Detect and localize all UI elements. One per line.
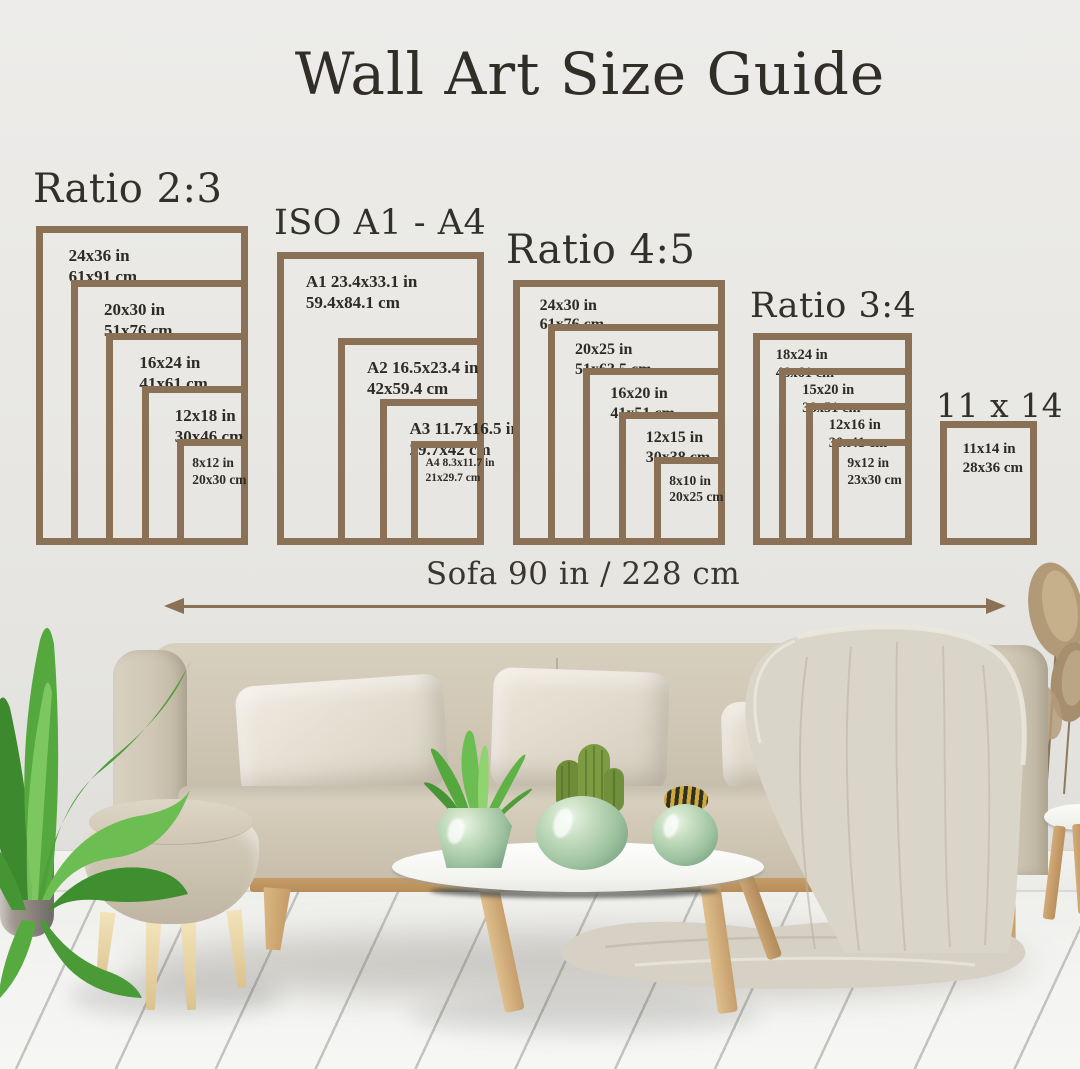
wall-art-size-guide-poster: Wall Art Size Guide Ratio 2:324x36 in61x…: [0, 0, 1080, 1069]
frame-size-label: 16x20 in41x51 cm: [610, 384, 674, 424]
size-in-inches: 8x10 in: [669, 473, 723, 490]
page-title: Wall Art Size Guide: [140, 40, 1040, 108]
size-in-inches: 8x12 in: [192, 455, 246, 472]
frame-size-label: 8x10 in20x25 cm: [669, 473, 723, 506]
size-in-inches: 11x14 in: [963, 440, 1023, 459]
frame-size-label: 9x12 in23x30 cm: [847, 455, 901, 488]
size-frame-18x24-in: 18x24 in46x61 cm: [753, 333, 912, 545]
group-heading-ratio-4-5: Ratio 4:5: [506, 227, 695, 273]
frame-size-label: 12x16 in30x41 cm: [829, 417, 887, 453]
size-in-inches: 20x30 in: [104, 299, 172, 320]
floor-plant: [0, 600, 202, 1030]
frame-size-label: 11x14 in28x36 cm: [963, 440, 1023, 477]
size-frame-15x20-in: 15x20 in38x51 cm: [779, 368, 912, 545]
size-in-inches: 12x16 in: [829, 417, 887, 435]
size-in-cm: 20x30 cm: [192, 472, 246, 489]
frame-size-label: A4 8.3x11.7 in21x29.7 cm: [426, 456, 495, 485]
size-in-cm: 30x38 cm: [646, 448, 710, 468]
cactus-vase: [536, 796, 628, 870]
size-in-cm: 46x61 cm: [776, 365, 834, 383]
size-in-cm: 51x76 cm: [104, 320, 172, 341]
size-frame-a2-16.5x23.4-in: A2 16.5x23.4 in42x59.4 cm: [338, 338, 484, 545]
size-in-cm: 59.4x84.1 cm: [306, 292, 417, 313]
group-heading-ratio-2-3: Ratio 2:3: [33, 166, 222, 212]
frame-size-label: 20x25 in51x63.5 cm: [575, 340, 651, 380]
pillow: [234, 673, 449, 799]
coffee-table-shadow: [410, 995, 760, 1035]
size-in-inches: A4 8.3x11.7 in: [426, 456, 495, 470]
size-in-inches: 12x15 in: [646, 428, 710, 448]
size-frame-16x20-in: 16x20 in41x51 cm: [583, 368, 725, 545]
size-in-cm: 42x59.4 cm: [367, 378, 478, 399]
size-in-inches: 18x24 in: [776, 347, 834, 365]
frame-size-label: A3 11.7x16.5 in29.7x42 cm: [409, 418, 520, 460]
size-in-cm: 41x61 cm: [139, 373, 207, 394]
size-in-cm: 20x25 cm: [669, 489, 723, 506]
frame-size-label: 20x30 in51x76 cm: [104, 299, 172, 341]
size-in-cm: 61x76 cm: [540, 315, 604, 335]
size-in-cm: 38x51 cm: [802, 400, 860, 418]
size-frame-16x24-in: 16x24 in41x61 cm: [106, 333, 248, 545]
frame-size-label: 16x24 in41x61 cm: [139, 352, 207, 394]
size-frame-12x15-in: 12x15 in30x38 cm: [619, 412, 725, 545]
sofa-measure-arrow-line: [182, 605, 988, 608]
size-in-cm: 23x30 cm: [847, 472, 901, 489]
sofa-measure-label: Sofa 90 in / 228 cm: [233, 556, 933, 592]
size-in-inches: 12x18 in: [175, 405, 243, 426]
frame-size-label: 24x36 in61x91 cm: [69, 245, 137, 287]
frame-size-label: A2 16.5x23.4 in42x59.4 cm: [367, 357, 478, 399]
frame-size-label: 12x18 in30x46 cm: [175, 405, 243, 447]
frame-size-label: 12x15 in30x38 cm: [646, 428, 710, 468]
size-frame-11x14-in: 11x14 in28x36 cm: [940, 421, 1037, 545]
size-frame-20x25-in: 20x25 in51x63.5 cm: [548, 324, 725, 545]
size-in-inches: A1 23.4x33.1 in: [306, 271, 417, 292]
size-in-cm: 29.7x42 cm: [409, 439, 520, 460]
size-frame-9x12-in: 9x12 in23x30 cm: [832, 439, 912, 545]
frame-size-label: 18x24 in46x61 cm: [776, 347, 834, 383]
size-in-inches: 24x30 in: [540, 296, 604, 316]
group-heading-size-11x14: 11 x 14: [936, 386, 1063, 425]
size-in-inches: A3 11.7x16.5 in: [409, 418, 520, 439]
size-in-cm: 61x91 cm: [69, 266, 137, 287]
frame-size-label: 15x20 in38x51 cm: [802, 382, 860, 418]
size-in-inches: 16x20 in: [610, 384, 674, 404]
size-frame-a1-23.4x33.1-in: A1 23.4x33.1 in59.4x84.1 cm: [277, 252, 484, 545]
size-in-inches: 16x24 in: [139, 352, 207, 373]
size-in-inches: A2 16.5x23.4 in: [367, 357, 478, 378]
size-in-inches: 15x20 in: [802, 382, 860, 400]
size-frame-8x12-in: 8x12 in20x30 cm: [177, 439, 248, 545]
size-in-cm: 21x29.7 cm: [426, 471, 495, 485]
size-in-cm: 28x36 cm: [963, 459, 1023, 478]
size-frame-12x16-in: 12x16 in30x41 cm: [806, 403, 912, 545]
size-frame-8x10-in: 8x10 in20x25 cm: [654, 457, 725, 546]
size-frame-a4-8.3x11.7-in: A4 8.3x11.7 in21x29.7 cm: [411, 441, 484, 545]
size-in-cm: 51x63.5 cm: [575, 360, 651, 380]
size-in-inches: 24x36 in: [69, 245, 137, 266]
arrow-right-icon: [986, 598, 1006, 614]
size-frame-a3-11.7x16.5-in: A3 11.7x16.5 in29.7x42 cm: [380, 399, 484, 545]
size-in-inches: 20x25 in: [575, 340, 651, 360]
frame-size-label: 24x30 in61x76 cm: [540, 296, 604, 336]
arrow-left-icon: [164, 598, 184, 614]
group-heading-ratio-3-4: Ratio 3:4: [750, 286, 916, 326]
size-in-cm: 30x41 cm: [829, 435, 887, 453]
size-frame-24x30-in: 24x30 in61x76 cm: [513, 280, 725, 546]
size-in-inches: 9x12 in: [847, 455, 901, 472]
size-in-cm: 41x51 cm: [610, 404, 674, 424]
size-frame-20x30-in: 20x30 in51x76 cm: [71, 280, 248, 546]
frame-size-label: A1 23.4x33.1 in59.4x84.1 cm: [306, 271, 417, 313]
size-frame-12x18-in: 12x18 in30x46 cm: [142, 386, 248, 545]
size-frame-24x36-in: 24x36 in61x91 cm: [36, 226, 248, 545]
frame-size-label: 8x12 in20x30 cm: [192, 455, 246, 488]
size-in-cm: 30x46 cm: [175, 426, 243, 447]
succulent-vase: [652, 804, 718, 866]
group-heading-iso-a1-a4: ISO A1 - A4: [274, 203, 486, 243]
